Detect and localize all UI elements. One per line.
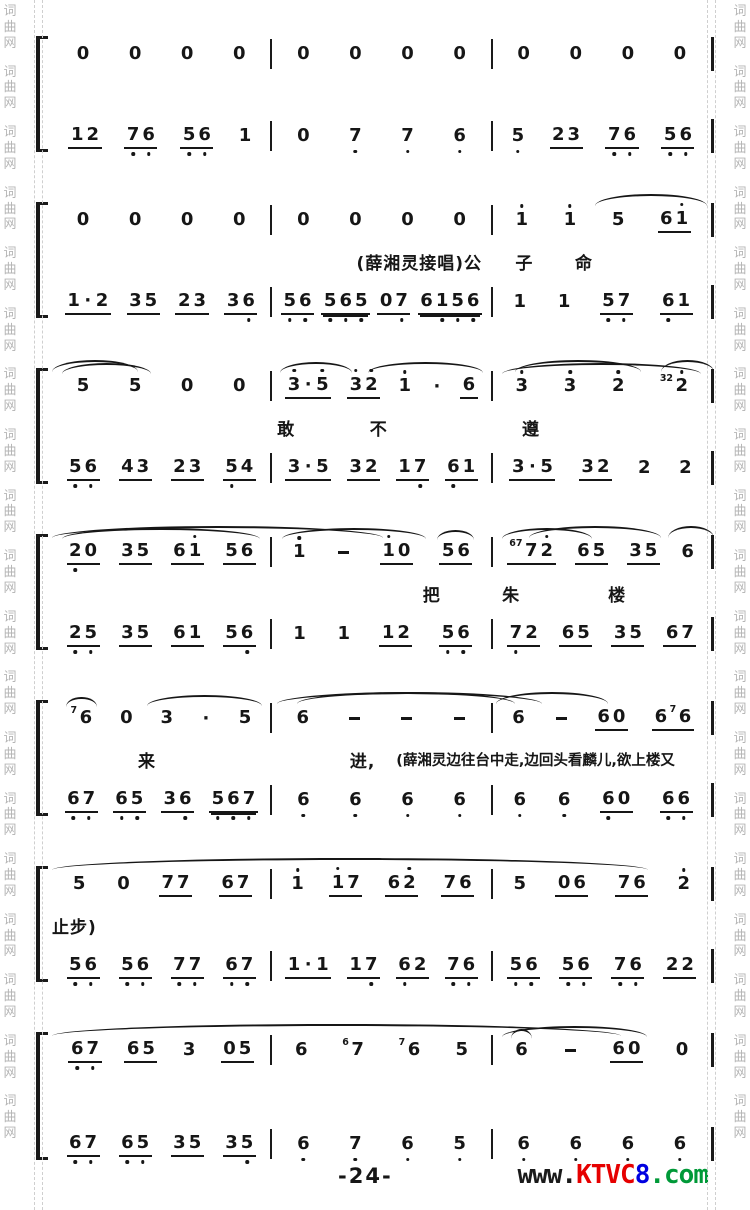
- lyric-row: 来进,(薛湘灵边往台中走,边回头看麟儿,欲上楼又: [52, 742, 714, 776]
- beam: 61: [171, 622, 204, 647]
- watermark-char: 网: [733, 702, 746, 718]
- note-digit: 5: [454, 1039, 470, 1061]
- measure: 72653567: [493, 622, 711, 647]
- note-unit: 72: [507, 622, 540, 647]
- beam: 1·2: [65, 290, 111, 315]
- system-3: 55003·5321·6332322敢不遵564323543·53217613·…: [52, 362, 714, 492]
- watermark-group: 词曲网: [733, 1034, 746, 1082]
- octave-dot-low: [288, 318, 292, 322]
- watermark-char: 曲: [3, 141, 16, 157]
- watermark-char: 曲: [3, 383, 16, 399]
- beam: 32: [579, 456, 612, 481]
- note-unit: 65: [124, 1038, 157, 1063]
- barline: [711, 285, 714, 319]
- note-digit: 0: [672, 43, 688, 65]
- phrase-arc: [52, 1024, 621, 1036]
- note-unit: 17: [347, 954, 380, 979]
- note-unit: 2: [677, 457, 695, 479]
- octave-dot-low: [126, 982, 130, 986]
- note-digit: 5: [450, 290, 466, 312]
- note-digit: 1: [292, 541, 308, 563]
- barline: [711, 451, 714, 485]
- note-unit: 0: [74, 43, 92, 65]
- beam: 1: [511, 291, 529, 313]
- beam: 56: [223, 540, 256, 565]
- watermark-group: 词曲网: [733, 489, 746, 537]
- duration-dot: ·: [200, 708, 213, 729]
- measure: 677265356: [493, 540, 711, 565]
- watermark-char: 词: [733, 1094, 746, 1110]
- beam: 6156: [418, 290, 482, 315]
- watermark-char: 曲: [3, 202, 16, 218]
- duration-dot: ·: [302, 456, 315, 477]
- measure: 0000: [272, 43, 490, 65]
- watermark-char: 网: [3, 944, 16, 960]
- watermark-char: 词: [3, 65, 16, 81]
- note-unit: 3: [561, 375, 579, 397]
- beam: 6: [451, 789, 469, 811]
- beam: 0: [178, 375, 196, 397]
- beam: 56: [559, 954, 592, 979]
- watermark-char: 词: [733, 670, 746, 686]
- note-digit: 1: [381, 540, 397, 562]
- watermark-char: 网: [3, 36, 16, 52]
- note-digit: 2: [678, 457, 694, 479]
- note-digit: 4: [239, 456, 255, 478]
- note-digit: 5: [576, 622, 592, 644]
- watermark-char: 词: [733, 367, 746, 383]
- octave-dot-low: [328, 318, 332, 322]
- grace-note: 32: [660, 374, 673, 384]
- note-digit: 5: [181, 124, 197, 146]
- beam: 76: [445, 954, 478, 979]
- note-unit: [450, 717, 469, 720]
- watermark-char: 曲: [733, 929, 746, 945]
- watermark-char: 词: [3, 307, 16, 323]
- note-digit: 1: [330, 872, 346, 894]
- octave-dot-high: [403, 370, 407, 374]
- lyric-text: 朱: [502, 581, 520, 606]
- note-unit: 76: [445, 954, 478, 979]
- score: 0000000000001276561077652376560000000011…: [52, 30, 714, 1204]
- note-unit: 67: [223, 954, 256, 979]
- note-unit: 0: [126, 43, 144, 65]
- slur-arc: [66, 697, 96, 707]
- note-unit: 62: [385, 872, 418, 897]
- watermark-char: 词: [733, 549, 746, 565]
- watermark-char: 曲: [733, 80, 746, 96]
- note-unit: 06: [555, 872, 588, 897]
- note-unit: 17: [396, 456, 429, 481]
- watermark-char: 词: [3, 1034, 16, 1050]
- beam: 65: [575, 540, 608, 565]
- beam: 5: [74, 375, 92, 397]
- lyric-row: 把朱楼: [52, 576, 714, 610]
- note-digit: 6: [296, 1133, 312, 1155]
- note-unit: 6: [399, 1133, 417, 1155]
- lyric-row: (薛湘灵接唱)公子命: [52, 244, 714, 278]
- note-digit: 3: [120, 622, 136, 644]
- note-digit: 0: [616, 788, 632, 810]
- beam: 2: [677, 457, 695, 479]
- note-digit: 7: [125, 124, 141, 146]
- beam: 6: [399, 789, 417, 811]
- note-digit: 2: [674, 375, 690, 397]
- note-unit: 56: [661, 124, 694, 149]
- octave-dot-low: [582, 982, 586, 986]
- beam: 25: [67, 622, 100, 647]
- octave-dot-low: [530, 982, 534, 986]
- note-unit: 35: [127, 290, 160, 315]
- duration-dash: [338, 551, 349, 554]
- beam: 67: [68, 1038, 101, 1063]
- watermark-group: 词曲网: [3, 549, 16, 597]
- beam: 1: [291, 623, 309, 645]
- watermark-char: 网: [3, 217, 16, 233]
- note-digit: 5: [83, 622, 99, 644]
- note-unit: 67: [663, 622, 696, 647]
- beam: 72: [507, 622, 540, 647]
- beam: 23: [171, 456, 204, 481]
- note-digit: 1: [315, 954, 331, 976]
- note-unit: 1: [289, 873, 307, 895]
- watermark-char: 曲: [733, 444, 746, 460]
- octave-dot-low: [89, 650, 93, 654]
- watermark-char: 曲: [733, 868, 746, 884]
- watermark-char: 曲: [3, 929, 16, 945]
- system-7: 676530566776566006765353567656666: [52, 1026, 714, 1168]
- note-digit: 6: [461, 954, 477, 976]
- watermark-char: 网: [3, 763, 16, 779]
- octave-dot-low: [74, 650, 78, 654]
- octave-dot-high: [292, 369, 296, 373]
- octave-dot-low: [682, 816, 686, 820]
- beam: 06: [555, 872, 588, 897]
- beam: 07: [377, 290, 410, 315]
- beam: 1: [289, 873, 307, 895]
- logo-suffix: .com: [649, 1160, 708, 1190]
- watermark-group: 词曲网: [733, 246, 746, 294]
- note-digit: 5: [539, 456, 555, 478]
- slur-arc: [368, 362, 483, 373]
- beam: 67: [67, 1132, 100, 1157]
- beam: 23: [550, 124, 583, 149]
- beam: 6: [510, 707, 528, 729]
- beam: 77: [159, 872, 192, 897]
- note-digit: 5: [452, 1133, 468, 1155]
- measure: 11561: [493, 208, 711, 233]
- note-digit: 2: [412, 954, 428, 976]
- note-unit: 76: [605, 124, 638, 149]
- note-digit: 0: [75, 43, 91, 65]
- octave-dot-low: [135, 816, 139, 820]
- note-unit: 67: [67, 1132, 100, 1157]
- measure: 56432354: [52, 456, 270, 481]
- octave-dot-low: [147, 152, 151, 156]
- watermark-group: 词曲网: [733, 4, 746, 52]
- note-digit: 6: [556, 789, 572, 811]
- watermark-char: 网: [733, 278, 746, 294]
- note-digit: 5: [610, 209, 626, 231]
- note-digit: 3: [286, 374, 302, 396]
- beam: 60: [595, 706, 628, 731]
- beam: 565: [321, 290, 370, 315]
- note-digit: 1: [237, 125, 253, 147]
- note-unit: 0: [178, 375, 196, 397]
- watermark-group: 词曲网: [733, 125, 746, 173]
- beam: 6: [292, 1039, 310, 1061]
- beam: 65: [559, 622, 592, 647]
- watermark-char: 曲: [3, 807, 16, 823]
- upper-staff-row: 7603·56660676: [52, 694, 714, 742]
- note-unit: 0: [115, 873, 133, 895]
- barline: [711, 119, 714, 153]
- watermark-char: 曲: [733, 202, 746, 218]
- measure: 6: [272, 707, 490, 729]
- watermark-char: 网: [3, 1005, 16, 1021]
- octave-dot-low: [245, 650, 249, 654]
- watermark-char: 曲: [733, 686, 746, 702]
- beam: 35: [119, 622, 152, 647]
- watermark-char: 词: [3, 792, 16, 808]
- note-unit: ·: [199, 708, 214, 729]
- measure: 11056: [272, 540, 490, 565]
- barline: [711, 369, 714, 403]
- watermark-char: 词: [733, 913, 746, 929]
- note-digit: 6: [661, 290, 677, 312]
- watermark-char: 词: [733, 4, 746, 20]
- note-unit: 43: [119, 456, 152, 481]
- note-digit: 5: [315, 456, 331, 478]
- watermark-char: 词: [3, 1094, 16, 1110]
- note-unit: 25: [67, 622, 100, 647]
- note-digit: 1: [434, 290, 450, 312]
- note-unit: 56: [559, 954, 592, 979]
- note-digit: 3: [181, 1039, 197, 1061]
- watermark-group: 词曲网: [733, 731, 746, 779]
- note-digit: 0: [516, 43, 532, 65]
- watermark-char: 曲: [3, 323, 16, 339]
- note-unit: 62: [396, 954, 429, 979]
- beam: 1·1: [285, 954, 331, 979]
- note-unit: 66: [660, 788, 693, 813]
- beam: 60: [600, 788, 633, 813]
- octave-dot-high: [321, 369, 325, 373]
- beam: 7: [347, 125, 365, 147]
- note-digit: 1: [514, 209, 530, 231]
- note-unit: 36: [161, 788, 194, 813]
- watermark-char: 网: [733, 581, 746, 597]
- beam: 56: [67, 954, 100, 979]
- grace-note: 7: [399, 1038, 406, 1048]
- watermark-group: 词曲网: [3, 731, 16, 779]
- note-unit: 61: [658, 208, 691, 233]
- note-unit: 0: [178, 209, 196, 231]
- note-unit: 6: [671, 1133, 689, 1155]
- watermark-group: 词曲网: [733, 973, 746, 1021]
- note-digit: 6: [622, 124, 638, 146]
- octave-dot-low: [245, 982, 249, 986]
- note-unit: 35: [627, 540, 660, 565]
- note-digit: 0: [378, 290, 394, 312]
- note-digit: 3: [187, 456, 203, 478]
- note-unit: 1: [291, 623, 309, 645]
- duration-dot: ·: [302, 954, 315, 975]
- note-digit: 5: [508, 954, 524, 976]
- note-digit: 2: [68, 622, 84, 644]
- note-unit: 60: [600, 788, 633, 813]
- note-unit: 1: [291, 541, 309, 563]
- watermark-char: 网: [3, 399, 16, 415]
- beam: 66: [660, 788, 693, 813]
- beam: 2: [636, 457, 654, 479]
- beam: ·: [199, 708, 214, 729]
- note-digit: 6: [338, 290, 354, 312]
- octave-dot-low: [456, 318, 460, 322]
- beam: 56: [281, 290, 314, 315]
- note-digit: 0: [179, 43, 195, 65]
- octave-dot-low: [471, 318, 475, 322]
- watermark-char: 曲: [3, 504, 16, 520]
- lyric-text: 遵: [522, 415, 540, 440]
- beam: 0: [231, 375, 249, 397]
- note-digit: 7: [241, 788, 257, 810]
- note-unit: 56: [119, 954, 152, 979]
- note-digit: 1: [562, 209, 578, 231]
- measure: 676536567: [52, 788, 270, 813]
- logo-digit: 8: [635, 1160, 650, 1190]
- octave-dot-high: [370, 369, 374, 373]
- octave-dot-low: [446, 650, 450, 654]
- note-digit: 7: [394, 290, 410, 312]
- beam: 56: [507, 954, 540, 979]
- note-digit: 5: [315, 374, 331, 396]
- note-digit: 6: [141, 124, 157, 146]
- watermark-group: 词曲网: [3, 246, 16, 294]
- watermark-char: 词: [3, 367, 16, 383]
- note-unit: 5: [509, 125, 527, 147]
- octave-dot-low: [667, 816, 671, 820]
- octave-dot-low: [183, 816, 187, 820]
- watermark-group: 词曲网: [3, 428, 16, 476]
- watermark-char: 词: [733, 307, 746, 323]
- note-digit: 6: [386, 872, 402, 894]
- note-digit: 0: [611, 706, 627, 728]
- watermark-char: 网: [733, 642, 746, 658]
- measure: 6666: [493, 1133, 711, 1155]
- note-digit: 0: [452, 209, 468, 231]
- system-6: 5077671176276506762止步)565677671·11762765…: [52, 860, 714, 990]
- dashed-border-right-inner: [707, 0, 708, 1210]
- measure: 56567767: [52, 954, 270, 979]
- watermark-char: 词: [733, 973, 746, 989]
- note-digit: 6: [676, 788, 692, 810]
- note-unit: 1: [236, 125, 254, 147]
- watermark-left: 词曲网词曲网词曲网词曲网词曲网词曲网词曲网词曲网词曲网词曲网词曲网词曲网词曲网词…: [1, 4, 19, 1210]
- note-digit: 5: [440, 622, 456, 644]
- beam: 56: [439, 540, 472, 565]
- watermark-group: 词曲网: [733, 913, 746, 961]
- note-unit: 0: [451, 43, 469, 65]
- score-page: 词曲网词曲网词曲网词曲网词曲网词曲网词曲网词曲网词曲网词曲网词曲网词曲网词曲网词…: [0, 0, 750, 1210]
- note-digit: 3: [162, 788, 178, 810]
- note-digit: 5: [68, 456, 84, 478]
- note-unit: 07: [377, 290, 410, 315]
- beam: 0: [295, 125, 313, 147]
- note-digit: 5: [224, 540, 240, 562]
- note-unit: 67: [65, 788, 98, 813]
- octave-dot-low: [141, 982, 145, 986]
- watermark-char: 网: [733, 1066, 746, 1082]
- note-digit: 3: [348, 456, 364, 478]
- slur-arc: [437, 530, 474, 540]
- note-unit: 2: [636, 457, 654, 479]
- duration-dash: [556, 717, 567, 720]
- note-digit: 7: [616, 290, 632, 312]
- measure: 1·2352336: [52, 290, 270, 315]
- watermark-group: 词曲网: [3, 852, 16, 900]
- beam: 0: [673, 1039, 691, 1061]
- note-digit: 6: [664, 622, 680, 644]
- duration-dash: [454, 717, 465, 720]
- note-unit: 0: [671, 43, 689, 65]
- watermark-char: 网: [733, 1005, 746, 1021]
- beam: 1: [561, 209, 579, 231]
- note-unit: 6: [347, 789, 365, 811]
- note-unit: 6: [295, 1133, 313, 1155]
- octave-dot-low: [684, 152, 688, 156]
- note-digit: 0: [232, 209, 248, 231]
- note-digit: 6: [224, 954, 240, 976]
- note-unit: 35: [223, 1132, 256, 1157]
- note-digit: 3: [514, 375, 530, 397]
- note-unit: 6: [451, 125, 469, 147]
- beam: 5: [509, 125, 527, 147]
- barline: [711, 701, 714, 735]
- note-unit: 65: [559, 622, 592, 647]
- note-digit: 7: [400, 125, 416, 147]
- watermark-group: 词曲网: [3, 367, 16, 415]
- watermark-char: 网: [3, 460, 16, 476]
- note-unit: 0: [347, 209, 365, 231]
- beam: 35: [611, 622, 644, 647]
- note-unit: 1: [561, 209, 579, 231]
- watermark-char: 网: [733, 217, 746, 233]
- note-unit: 3: [513, 375, 531, 397]
- note-digit: 0: [626, 1038, 642, 1060]
- note-digit: 1: [397, 456, 413, 478]
- note-digit: 5: [135, 540, 151, 562]
- note-digit: 0: [232, 43, 248, 65]
- measure: 115761: [493, 290, 711, 315]
- barline: [711, 867, 714, 901]
- note-digit: 5: [120, 954, 136, 976]
- watermark-char: 曲: [3, 868, 16, 884]
- octave-dot-low: [452, 484, 456, 488]
- note-digit: 6: [511, 707, 527, 729]
- note-digit: 5: [127, 375, 143, 397]
- beam: 6: [295, 1133, 313, 1155]
- note-digit: 5: [512, 873, 528, 895]
- note-digit: 5: [322, 290, 338, 312]
- note-digit: 7: [442, 872, 458, 894]
- octave-dot-low: [304, 318, 308, 322]
- beam: 0: [178, 209, 196, 231]
- note-digit: 5: [187, 1132, 203, 1154]
- note-digit: 5: [440, 540, 456, 562]
- watermark-char: 网: [733, 339, 746, 355]
- beam: 1: [291, 541, 309, 563]
